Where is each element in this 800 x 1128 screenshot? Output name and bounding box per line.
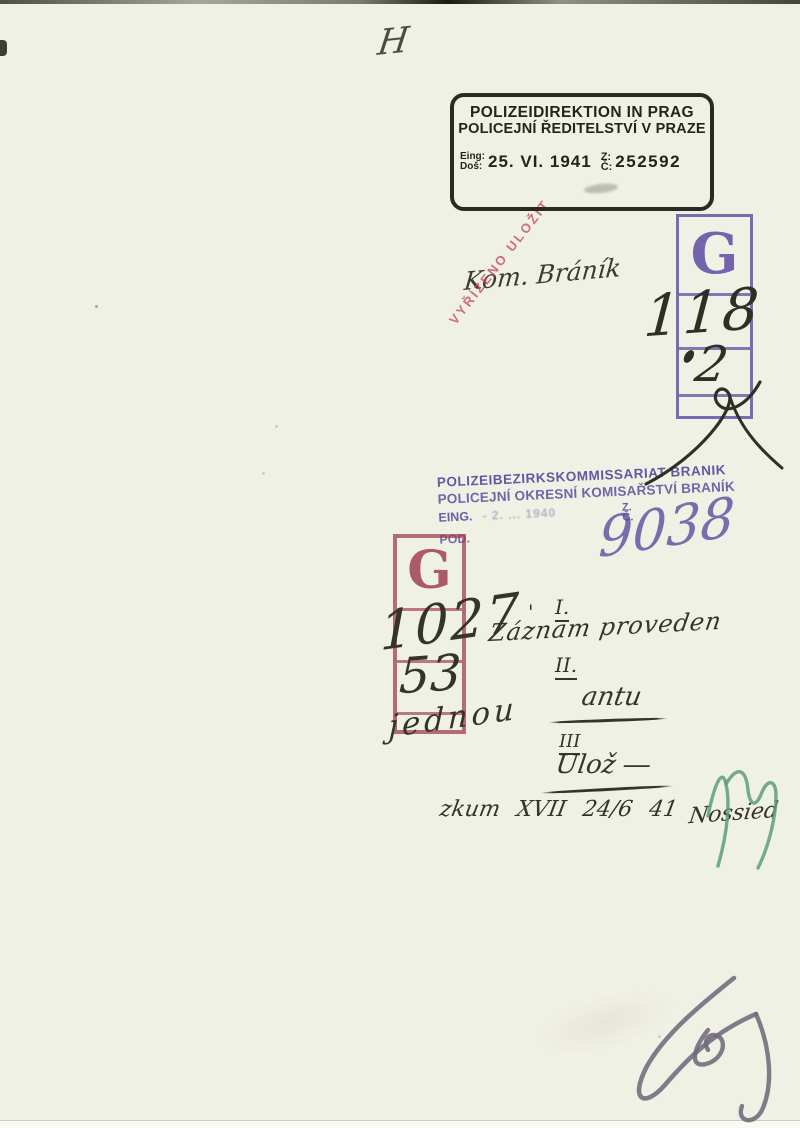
note-uloz: Ulož ―	[554, 750, 652, 780]
paper-speck	[262, 472, 265, 475]
ink-paraph-upper	[630, 372, 795, 492]
note-ii-label: II.	[555, 653, 577, 680]
document-page: H POLIZEIDIREKTION IN PRAG POLICEJNÍ ŘED…	[0, 0, 800, 1128]
number-label-czech: Č:	[601, 162, 613, 172]
graphite-paraph	[616, 972, 800, 1127]
paper-top-edge	[0, 0, 800, 4]
top-pencil-mark: H	[375, 20, 411, 64]
paper-speck	[95, 305, 98, 308]
file-number: 252592	[615, 152, 681, 172]
received-date: 25. VI. 1941	[488, 152, 592, 172]
paper-speck	[275, 425, 278, 428]
stamp-line-german: POLIZEIDIREKTION IN PRAG	[454, 104, 710, 121]
left-edge-mark	[0, 40, 7, 56]
g-lower-number-53: 53	[398, 644, 462, 706]
note-zaznam-proveden: Záznam proveden	[487, 607, 724, 647]
underline-stroke	[540, 784, 674, 794]
underline-stroke	[548, 717, 668, 724]
note-antu: antu	[579, 682, 644, 712]
date-reference-line: zkum XVII 24/6 41	[438, 797, 680, 822]
received-label-czech: Doš:	[460, 162, 485, 172]
stamp-entry-row: Eing: Doš: 25. VI. 1941 Z: Č: 252592	[460, 152, 706, 172]
green-pencil-paraph	[700, 756, 800, 868]
branik-eing-date: - 2. ... 1940	[482, 506, 556, 523]
stamp-line-czech: POLICEJNÍ ŘEDITELSTVÍ V PRAZE	[454, 121, 710, 137]
branik-eing-label: EING.	[438, 509, 473, 524]
file-number-label: Z: Č:	[601, 152, 613, 172]
prague-police-entry-stamp: POLIZEIDIREKTION IN PRAG POLICEJNÍ ŘEDIT…	[450, 93, 714, 211]
received-label: Eing: Doš:	[460, 152, 485, 172]
